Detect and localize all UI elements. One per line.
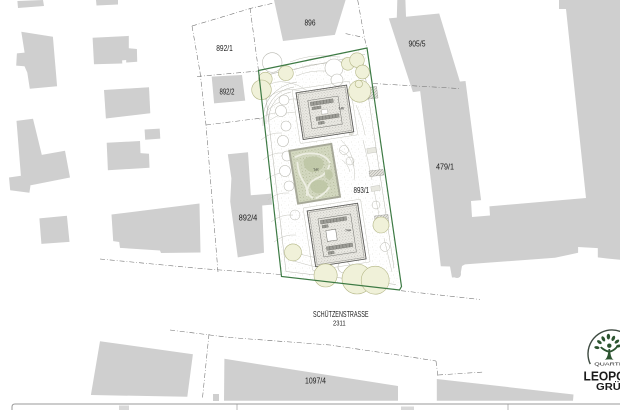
- svg-text:892/2: 892/2: [220, 87, 235, 97]
- svg-text:892/1: 892/1: [216, 43, 233, 53]
- svg-text:893/1: 893/1: [354, 185, 370, 195]
- svg-text:QUARTIER: QUARTIER: [594, 361, 620, 367]
- svg-text:479/1: 479/1: [436, 162, 454, 172]
- svg-text:892/4: 892/4: [239, 213, 258, 223]
- svg-text:1097/4: 1097/4: [305, 375, 326, 385]
- svg-text:896: 896: [305, 18, 316, 28]
- svg-text:GRÜN: GRÜN: [596, 380, 620, 393]
- svg-text:2311: 2311: [333, 318, 346, 327]
- svg-text:905/5: 905/5: [409, 39, 426, 49]
